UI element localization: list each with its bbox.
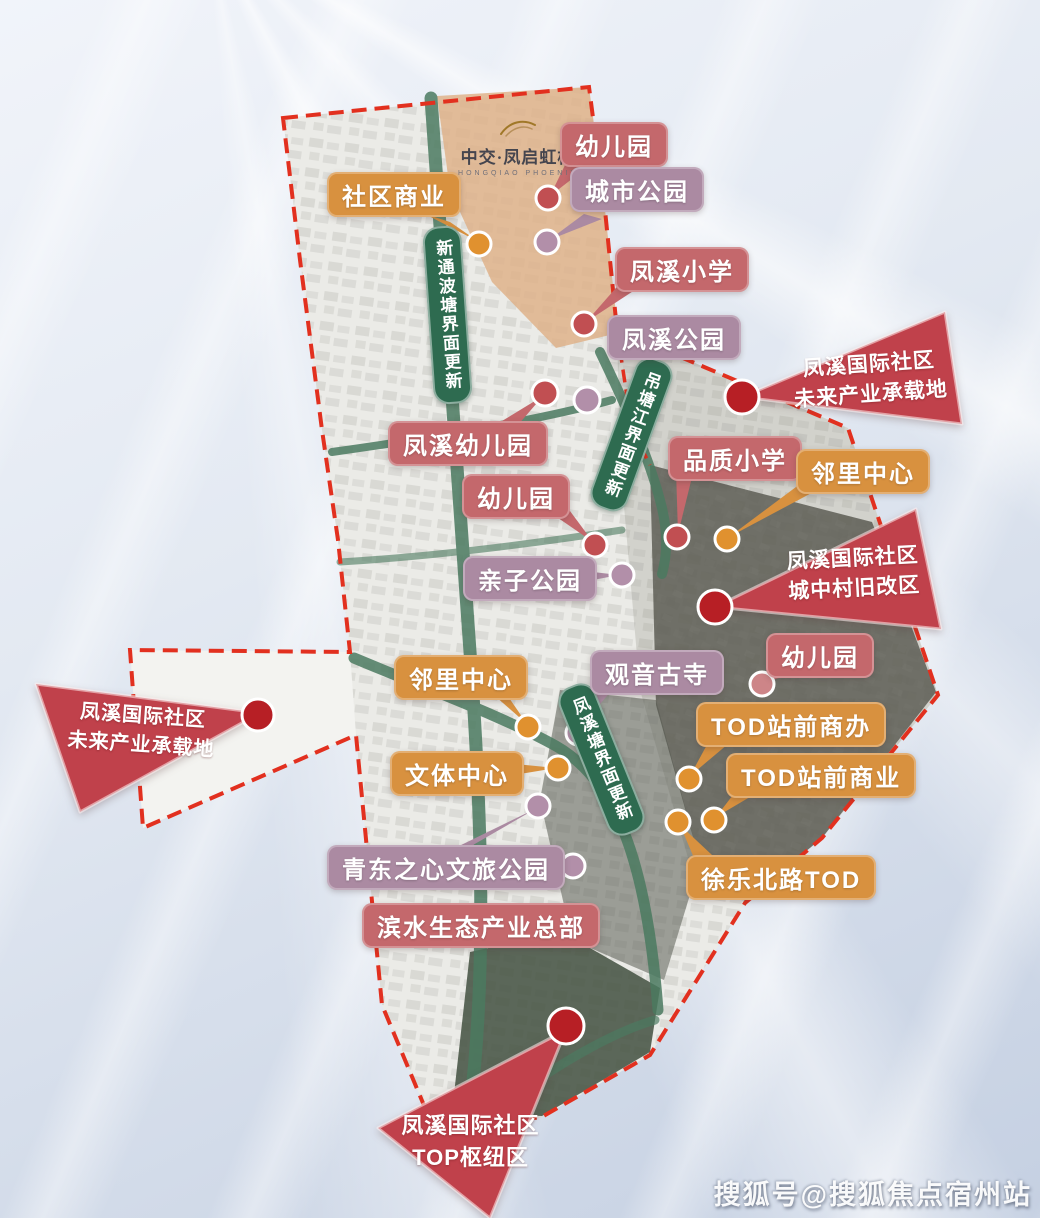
dot-urban-village <box>698 590 732 624</box>
dot-tod-office <box>677 767 701 791</box>
tag-fengxi-park: 凤溪公园 <box>607 315 741 360</box>
tag-kindergarten-mid: 幼儿园 <box>462 474 570 519</box>
tag-neighborhood-lower: 邻里中心 <box>394 655 528 700</box>
tag-neighborhood-upper: 邻里中心 <box>796 449 930 494</box>
tag-kindergarten-right: 幼儿园 <box>766 633 874 678</box>
dot-tod-retail <box>702 808 726 832</box>
tag-parent-child-park: 亲子公园 <box>463 556 597 601</box>
tag-tod-retail: TOD站前商业 <box>726 753 916 798</box>
tag-guanyin-temple: 观音古寺 <box>590 650 724 695</box>
tag-fengxi-kindergarten: 凤溪幼儿园 <box>388 421 548 466</box>
tag-kindergarten-top: 幼儿园 <box>560 122 668 167</box>
tag-quality-primary: 品质小学 <box>668 436 802 481</box>
tag-city-park: 城市公园 <box>570 167 704 212</box>
tag-xule-tod: 徐乐北路TOD <box>686 855 876 900</box>
tag-fengxi-primary: 凤溪小学 <box>615 247 749 292</box>
dot-fengxi-kindergarten <box>532 380 558 406</box>
phoenix-logo-icon <box>498 118 538 138</box>
tag-tod-office: TOD站前商办 <box>696 702 886 747</box>
dot-qingdong-park <box>526 794 550 818</box>
dot-kindergarten-mid <box>583 533 607 557</box>
dot-top-hub <box>548 1008 584 1044</box>
dot-xule-tod <box>666 810 690 834</box>
dot-culture-sports <box>546 756 570 780</box>
dot-fengxi-primary <box>572 312 596 336</box>
dot-neighborhood-upper <box>715 527 739 551</box>
dot-fengxi-park <box>574 387 600 413</box>
dot-quality-primary <box>665 525 689 549</box>
tag-binshui-hq: 滨水生态产业总部 <box>362 903 600 948</box>
dot-future-industry-west <box>242 699 274 731</box>
callout-bottom-text: 凤溪国际社区 TOP枢纽区 <box>368 1110 573 1174</box>
dot-community-biz <box>467 232 491 256</box>
tag-community-biz: 社区商业 <box>327 172 461 217</box>
tag-culture-sports: 文体中心 <box>390 751 524 796</box>
dot-future-industry-east <box>725 380 759 414</box>
dot-kindergarten-top <box>536 186 560 210</box>
sohu-watermark: 搜狐号@搜狐焦点宿州站 <box>714 1173 1032 1212</box>
callout-right-lower-text: 凤溪国际社区 城中村旧改区 <box>755 539 953 610</box>
dot-parent-child-park <box>610 563 634 587</box>
planning-map <box>0 0 1040 1218</box>
logo-subtitle: HONGQIAO PHOENIX <box>446 170 590 177</box>
tag-qingdong-park: 青东之心文旅公园 <box>327 845 565 890</box>
dot-city-park <box>535 230 559 254</box>
dot-neighborhood-lower <box>516 715 540 739</box>
